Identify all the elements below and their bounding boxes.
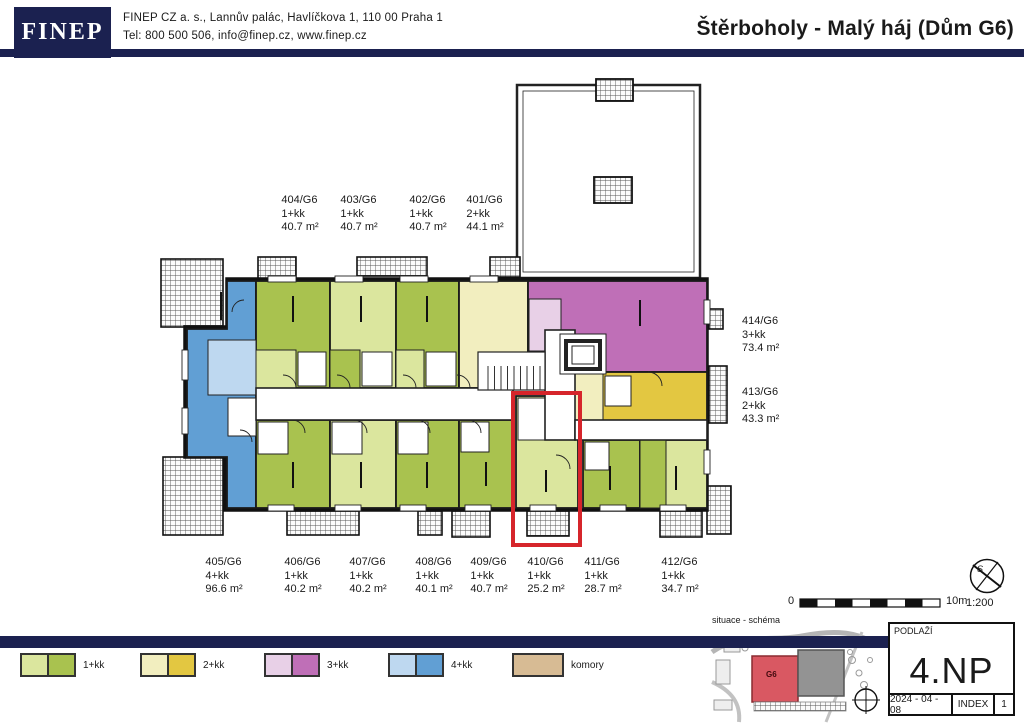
legend-swatch-2kk xyxy=(140,653,196,677)
legend-label: komory xyxy=(571,660,604,671)
title-block: PODLAŽÍ 4.NP 2024 - 04 - 08 INDEX 1 xyxy=(888,622,1015,716)
apartment-type: 1+kk xyxy=(284,570,321,584)
apartment-area: 28.7 m² xyxy=(584,583,621,597)
footer-divider-bar xyxy=(0,636,890,648)
apartment-type: 4+kk xyxy=(205,570,242,584)
compass-letter: S xyxy=(977,564,983,574)
balcony xyxy=(161,259,223,327)
legend-item-3kk: 3+kk xyxy=(264,653,348,677)
apartment-area: 40.7 m² xyxy=(409,221,446,235)
apartment-type: 1+kk xyxy=(527,570,564,584)
legend-label: 2+kk xyxy=(203,660,224,671)
balcony xyxy=(709,366,727,423)
apartment-type: 1+kk xyxy=(340,208,377,222)
apartment-type: 1+kk xyxy=(349,570,386,584)
apartment-id: 406/G6 xyxy=(284,556,321,570)
apartment-label-405: 405/G6 4+kk 96.6 m² xyxy=(205,556,242,597)
apartment-type: 1+kk xyxy=(661,570,698,584)
apartment-area: 40.1 m² xyxy=(415,583,452,597)
legend-swatch-3kk xyxy=(264,653,320,677)
apartment-id: 405/G6 xyxy=(205,556,242,570)
balcony xyxy=(709,309,723,329)
apartment-area: 34.7 m² xyxy=(661,583,698,597)
scale-bar xyxy=(800,599,940,607)
legend-label: 3+kk xyxy=(327,660,348,671)
apartment-area: 73.4 m² xyxy=(742,342,779,356)
apartment-label-407: 407/G6 1+kk 40.2 m² xyxy=(349,556,386,597)
floor-plan-drawing xyxy=(0,0,1024,724)
apartment-label-404: 404/G6 1+kk 40.7 m² xyxy=(281,194,318,235)
map-building-neighbor xyxy=(798,650,844,696)
apartment-area: 40.7 m² xyxy=(340,221,377,235)
floor-number: 4.NP xyxy=(890,650,1013,692)
apartment-id: 408/G6 xyxy=(415,556,452,570)
apartment-area: 43.3 m² xyxy=(742,413,779,427)
apartment-area: 40.7 m² xyxy=(470,583,507,597)
apartment-label-409: 409/G6 1+kk 40.7 m² xyxy=(470,556,507,597)
apartment-id: 410/G6 xyxy=(527,556,564,570)
map-crosshair-icon xyxy=(852,686,880,714)
corridor-right xyxy=(575,420,707,440)
index-value: 1 xyxy=(993,695,1013,714)
legend-label: 1+kk xyxy=(83,660,104,671)
north-compass-icon xyxy=(971,560,1004,593)
scale-ratio: 1:200 xyxy=(966,597,994,609)
scale-zero: 0 xyxy=(788,595,794,607)
apartment-label-401: 401/G6 2+kk 44.1 m² xyxy=(466,194,503,235)
company-address: FINEP CZ a. s., Lannův palác, Havlíčkova… xyxy=(123,12,443,24)
apartment-area: 25.2 m² xyxy=(527,583,564,597)
apartment-id: 414/G6 xyxy=(742,315,779,329)
balcony xyxy=(707,486,731,534)
apartment-label-402: 402/G6 1+kk 40.7 m² xyxy=(409,194,446,235)
balcony xyxy=(357,257,427,276)
drawing-date: 2024 - 04 - 08 xyxy=(890,695,951,714)
apartment-label-406: 406/G6 1+kk 40.2 m² xyxy=(284,556,321,597)
apartment-id: 413/G6 xyxy=(742,386,779,400)
apartment-label-411: 411/G6 1+kk 28.7 m² xyxy=(584,556,621,597)
apartment-id: 401/G6 xyxy=(466,194,503,208)
apartment-type: 1+kk xyxy=(281,208,318,222)
apartment-type: 1+kk xyxy=(409,208,446,222)
index-label: INDEX xyxy=(951,695,993,714)
balcony xyxy=(527,511,569,536)
terrace-outline xyxy=(517,79,700,278)
apartment-label-403: 403/G6 1+kk 40.7 m² xyxy=(340,194,377,235)
apartment-label-413: 413/G6 2+kk 43.3 m² xyxy=(742,386,779,427)
apartment-type: 3+kk xyxy=(742,329,779,343)
apartment-type: 1+kk xyxy=(470,570,507,584)
legend-swatch-4kk xyxy=(388,653,444,677)
apartment-label-412: 412/G6 1+kk 34.7 m² xyxy=(661,556,698,597)
finep-logo-text: FINEP xyxy=(22,19,104,46)
apartment-label-414: 414/G6 3+kk 73.4 m² xyxy=(742,315,779,356)
apartment-id: 402/G6 xyxy=(409,194,446,208)
apartment-area: 40.2 m² xyxy=(284,583,321,597)
legend-swatch-komory xyxy=(512,653,564,677)
apartment-id: 403/G6 xyxy=(340,194,377,208)
apartment-id: 409/G6 xyxy=(470,556,507,570)
company-contact: Tel: 800 500 506, info@finep.cz, www.fin… xyxy=(123,30,367,42)
apartment-type: 1+kk xyxy=(584,570,621,584)
legend-label: 4+kk xyxy=(451,660,472,671)
map-building-g6 xyxy=(752,656,798,702)
balcony xyxy=(660,511,702,537)
apartment-id: 407/G6 xyxy=(349,556,386,570)
apartment-type: 2+kk xyxy=(742,400,779,414)
corridor xyxy=(256,388,513,420)
apartment-area: 40.2 m² xyxy=(349,583,386,597)
map-building-g6-label: G6 xyxy=(766,670,777,679)
balcony xyxy=(287,511,359,535)
apartment-area: 96.6 m² xyxy=(205,583,242,597)
apartment-label-410: 410/G6 1+kk 25.2 m² xyxy=(527,556,564,597)
legend-item-2kk: 2+kk xyxy=(140,653,224,677)
apartment-id: 412/G6 xyxy=(661,556,698,570)
scale-max: 10m xyxy=(946,595,967,607)
balcony xyxy=(418,511,442,535)
balcony xyxy=(452,511,490,537)
legend-item-1kk: 1+kk xyxy=(20,653,104,677)
apartment-type: 2+kk xyxy=(466,208,503,222)
apartment-label-408: 408/G6 1+kk 40.1 m² xyxy=(415,556,452,597)
apartment-type: 1+kk xyxy=(415,570,452,584)
finep-logo: FINEP xyxy=(14,7,111,58)
legend-item-4kk: 4+kk xyxy=(388,653,472,677)
page-title: Štěrboholy - Malý háj (Dům G6) xyxy=(696,17,1014,41)
situation-map-caption: situace - schéma xyxy=(712,615,780,625)
legend-item-komory: komory xyxy=(512,653,604,677)
apartment-id: 411/G6 xyxy=(584,556,621,570)
floor-caption: PODLAŽÍ xyxy=(894,626,933,636)
apartment-area: 44.1 m² xyxy=(466,221,503,235)
balcony xyxy=(490,257,520,277)
apartment-id: 404/G6 xyxy=(281,194,318,208)
apartment-area: 40.7 m² xyxy=(281,221,318,235)
balcony xyxy=(163,457,223,535)
legend-swatch-1kk xyxy=(20,653,76,677)
header-divider-bar xyxy=(0,49,1024,57)
